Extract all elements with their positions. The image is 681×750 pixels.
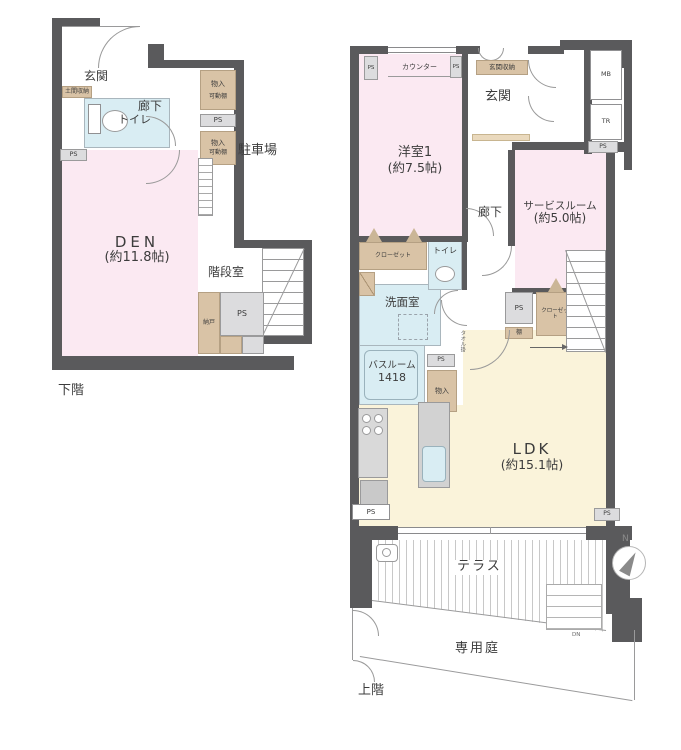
- wall: [350, 540, 372, 608]
- tr-label: TR: [602, 118, 611, 125]
- ldk-label: LDK (約15.1帖): [462, 436, 602, 478]
- ps-label: PS: [437, 357, 444, 364]
- garden-edge-line: [360, 656, 633, 701]
- stair-arrow-head: [562, 344, 568, 350]
- ps-label: PS: [515, 304, 524, 312]
- genkan-label: 玄関: [485, 90, 511, 105]
- door-arc: [353, 660, 375, 682]
- towel-rack-label: タオル掛: [459, 330, 465, 352]
- counter-label: カウンター: [402, 63, 437, 71]
- door-arc: [528, 60, 556, 88]
- genkan-storage-label: 玄関収納: [489, 64, 515, 71]
- counter-line: [388, 76, 456, 77]
- ps-box: PS: [427, 354, 455, 367]
- ldk-name: LDK: [513, 441, 552, 458]
- ps-label: PS: [599, 144, 606, 151]
- washer-outline: [398, 314, 428, 340]
- senmen-label: 洗面室: [385, 296, 420, 309]
- ps-label: PS: [453, 64, 460, 70]
- stove-burner: [362, 414, 371, 423]
- bath-size: 1418: [378, 372, 406, 385]
- closet-strip: クローゼット: [359, 242, 427, 270]
- wall: [350, 46, 388, 54]
- slop-sink-drain: [382, 548, 391, 557]
- stair-arrow: [530, 347, 564, 348]
- wall: [462, 242, 467, 290]
- floor-plan-canvas: 土間収納 物入 可動棚 PS 物入 可動棚 PS 納戸 PS 玄関 廊下 トイレ…: [0, 0, 681, 750]
- ps-box: PS: [594, 508, 620, 521]
- wall: [350, 526, 398, 540]
- garden-label: 専用庭: [455, 642, 500, 657]
- closet-label: クローゼット: [375, 253, 411, 260]
- room1-size: (約7.5帖): [388, 161, 443, 175]
- ps-box: PS: [352, 504, 390, 520]
- door-arc: [528, 96, 554, 122]
- garden-steps: [546, 584, 602, 630]
- service-size: (約5.0帖): [534, 212, 586, 226]
- door-arc: [482, 246, 512, 276]
- ps-box: PS: [450, 56, 462, 78]
- entrance-step: [472, 134, 530, 141]
- ps-label: PS: [603, 511, 610, 518]
- upper-floor-plan: 玄関収納 MB TR PS カウンター PS PS クローゼット トイレ 洗面室…: [0, 0, 681, 750]
- monoire-label: 物入: [435, 387, 449, 395]
- door-arc: [353, 610, 379, 636]
- room1-name: 洋室1: [398, 146, 432, 161]
- door-arc: [441, 300, 467, 326]
- folding-door-mark: [548, 278, 564, 292]
- ps-box: PS: [364, 56, 378, 80]
- folding-door-mark: [366, 228, 382, 242]
- shelf-label: 棚: [516, 330, 522, 337]
- closet-small: [359, 272, 375, 296]
- ps-box: PS: [588, 141, 618, 153]
- garden-side-line: [634, 630, 635, 700]
- wall: [606, 150, 615, 535]
- toilet-label: トイレ: [433, 246, 457, 255]
- trunk-room: TR: [590, 104, 622, 140]
- stove-burner: [374, 426, 383, 435]
- sliding-window: [398, 527, 586, 534]
- service-room-label: サービスルーム (約5.0帖): [514, 196, 606, 230]
- genkan-storage: 玄関収納: [476, 60, 528, 75]
- bath-label: バスルーム 1418: [360, 356, 424, 390]
- kitchen-cabinet: [360, 480, 388, 506]
- ps-label: PS: [368, 65, 375, 71]
- ps-box: PS: [505, 292, 533, 324]
- down-label: DN: [572, 632, 580, 638]
- window-mullion: [490, 527, 491, 534]
- north-label: N: [622, 534, 629, 544]
- meter-box: MB: [590, 50, 622, 100]
- stove-burner: [374, 414, 383, 423]
- window: [388, 47, 456, 53]
- rouka-label: 廊下: [478, 206, 502, 220]
- room1-label: 洋室1 (約7.5帖): [375, 144, 455, 178]
- wall: [456, 46, 480, 54]
- kitchen-sink: [422, 446, 446, 482]
- upper-floor-title: 上階: [358, 684, 384, 699]
- mb-label: MB: [601, 71, 611, 78]
- ps-label: PS: [367, 508, 376, 516]
- toilet-bowl: [435, 266, 455, 282]
- ldk-size: (約15.1帖): [501, 458, 564, 472]
- folding-door-mark: [406, 228, 422, 242]
- terrace-label: テラス: [455, 560, 504, 575]
- wall: [612, 598, 642, 642]
- stove-burner: [362, 426, 371, 435]
- wall: [528, 46, 564, 54]
